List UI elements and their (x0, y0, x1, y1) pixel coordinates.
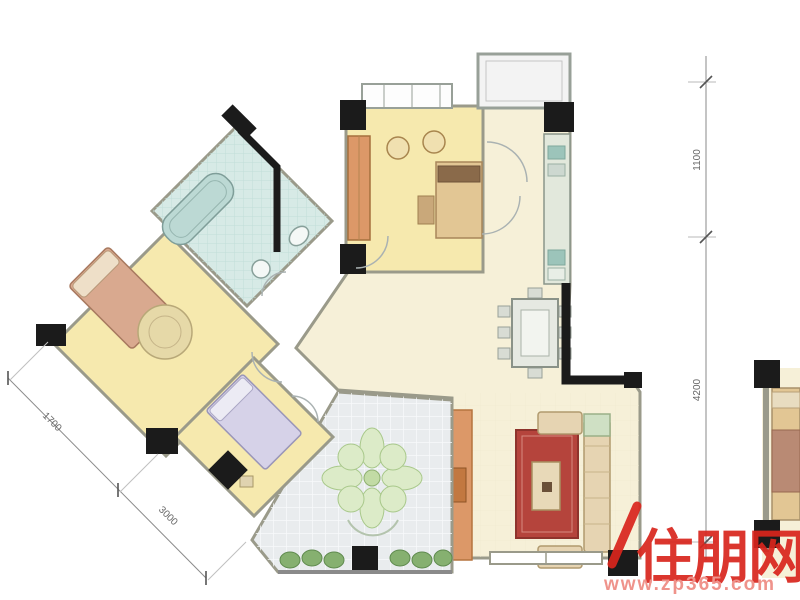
wall-column (146, 428, 178, 454)
armchair-top (538, 412, 582, 434)
dining-table-inner (521, 310, 549, 356)
dining-chair (528, 288, 542, 298)
dining-chair (498, 327, 510, 338)
kitchen (544, 134, 570, 284)
wall-column (36, 324, 66, 346)
balcony-plant (434, 550, 452, 566)
wall-column (340, 244, 366, 274)
dining-step-wall (566, 283, 632, 380)
flower-petal (338, 486, 364, 512)
flower-petal (380, 486, 406, 512)
top-bedroom-chair (423, 131, 445, 153)
bathroom-sink (252, 260, 270, 278)
wall-column (624, 372, 642, 388)
top-bedroom (346, 84, 483, 272)
coffee-table-decor (542, 482, 552, 492)
dimension-right: 1100 4200 (668, 56, 716, 560)
flower-petal (382, 466, 422, 490)
dining-chair (528, 368, 542, 378)
flower-petal (322, 466, 362, 490)
balcony-plant (302, 550, 322, 566)
side-table-plant (584, 414, 610, 436)
watermark-url-text: www.zp365.com (603, 574, 776, 595)
kitchen-stove (548, 250, 565, 265)
adjacent-bed-blanket (772, 430, 800, 492)
top-bed-pillow (438, 166, 480, 182)
balcony-planter-box (352, 546, 378, 572)
flower-petal (360, 488, 384, 528)
kitchen-worktop (548, 268, 565, 280)
balcony-plant (390, 550, 410, 566)
bay-window (362, 84, 452, 108)
adjacent-bed-pillow (772, 392, 800, 408)
flower-center (364, 470, 380, 486)
top-bedroom-chair (387, 137, 409, 159)
second-bedroom-nightstand (240, 476, 253, 487)
wall-column (340, 100, 366, 130)
dimension-label: 4200 (692, 378, 703, 401)
balcony-plant (324, 552, 344, 568)
kitchen-sink (548, 146, 565, 159)
master-round-rug (138, 305, 192, 359)
dimension-label: 1100 (692, 149, 703, 171)
top-bedroom-desk (418, 196, 434, 224)
dimension-label: 3000 (156, 504, 180, 528)
wall-column (754, 360, 780, 388)
flower-petal (360, 428, 384, 468)
floor-plan-page: 1100 4200 1700 3000 住朋网 www.zp365.com (0, 0, 800, 600)
utility-balcony (478, 54, 570, 108)
dining-chair (498, 348, 510, 359)
flower-petal (380, 444, 406, 470)
kitchen-sink-drainer (548, 164, 565, 176)
sofa-right (584, 420, 610, 552)
wall-column (544, 102, 574, 132)
flower-petal (338, 444, 364, 470)
dining-chair (498, 306, 510, 317)
balcony-plant (280, 552, 300, 568)
balcony-plant (412, 552, 432, 568)
floor-plan-canvas: 1100 4200 1700 3000 住朋网 www.zp365.com (0, 0, 800, 600)
utility-balcony-floor (478, 54, 570, 108)
